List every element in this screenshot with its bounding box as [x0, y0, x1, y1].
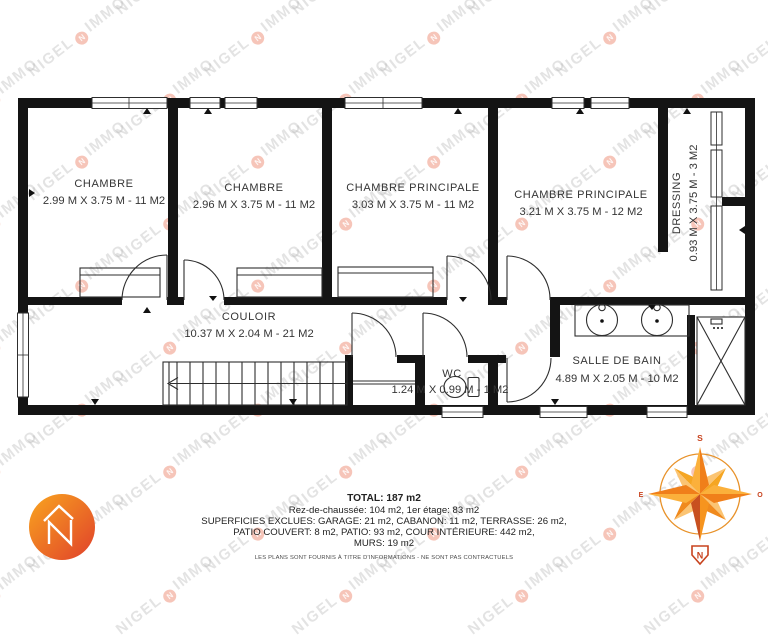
room-dims-salle-de-bain: 4.89 M X 2.05 M - 10 M2 — [555, 373, 678, 385]
surface-summary: TOTAL: 187 m2 Rez-de-chaussée: 104 m2, 1… — [0, 493, 768, 561]
room-dims-chambre-1: 2.99 M X 3.75 M - 11 M2 — [43, 195, 165, 207]
watermark-logo-dot: N — [337, 587, 355, 605]
wardrobe-icon — [237, 268, 322, 297]
staircase — [163, 362, 347, 405]
wardrobe-icon — [80, 268, 160, 297]
room-dims-chambre-principale-2: 3.21 M X 3.75 M - 12 M2 — [519, 206, 642, 218]
room-label-chambre-principale-2: CHAMBRE PRINCIPALE — [514, 189, 647, 201]
wardrobes — [80, 267, 433, 297]
walls — [18, 98, 755, 415]
floor-plan-page: { "watermark": { "word1": "NIGEL", "word… — [0, 0, 768, 576]
watermark-logo-dot: N — [513, 587, 531, 605]
window-icon — [711, 112, 722, 290]
room-label-wc: WC — [442, 368, 462, 380]
watermark-logo-dot: N — [0, 587, 3, 605]
excluded-areas-2: PATIO COUVERT: 8 m2, PATIO: 93 m2, COUR … — [0, 527, 768, 538]
door-icon — [507, 358, 551, 402]
double-sink-vanity — [575, 304, 689, 336]
room-label-dressing: DRESSING — [671, 172, 683, 234]
door-icon — [447, 256, 491, 300]
excluded-areas-1: SUPERFICIES EXCLUES: GARAGE: 21 m2, CABA… — [0, 516, 768, 527]
excluded-areas-3: MURS: 19 m2 — [0, 538, 768, 549]
window-icon — [540, 407, 587, 418]
room-label-couloir: COULOIR — [222, 311, 276, 323]
window-icon — [18, 313, 29, 397]
door-icon — [352, 313, 396, 357]
floor-areas: Rez-de-chaussée: 104 m2, 1er étage: 83 m… — [0, 505, 768, 516]
floor-plan: CHAMBRE 2.99 M X 3.75 M - 11 M2 CHAMBRE … — [0, 0, 768, 576]
windows — [18, 98, 723, 418]
disclaimer: LES PLANS SONT FOURNIS À TITRE D'INFORMA… — [0, 555, 768, 561]
window-icon — [442, 407, 483, 418]
room-dims-wc: 1.24 M X 0.99 M - 1 M2 — [392, 384, 509, 396]
room-dims-dressing: 0.93 M X 3.75 M - 3 M2 — [688, 145, 700, 262]
door-icon — [507, 256, 550, 300]
window-icon — [92, 98, 167, 109]
window-icon — [552, 98, 584, 109]
room-dims-couloir: 10.37 M X 2.04 M - 21 M2 — [184, 328, 313, 340]
window-icon — [647, 407, 687, 418]
window-icon — [345, 98, 422, 109]
window-icon — [225, 98, 257, 109]
door-icon — [423, 313, 467, 357]
room-label-chambre-2: CHAMBRE — [224, 182, 283, 194]
wardrobe-icon — [338, 267, 433, 297]
watermark-logo-dot: N — [161, 587, 179, 605]
room-label-chambre-1: CHAMBRE — [74, 178, 133, 190]
watermark-logo-dot: N — [689, 587, 707, 605]
window-icon — [591, 98, 629, 109]
room-dims-chambre-principale-1: 3.03 M X 3.75 M - 11 M2 — [352, 199, 474, 211]
room-dims-chambre-2: 2.96 M X 3.75 M - 11 M2 — [193, 199, 315, 211]
room-label-salle-de-bain: SALLE DE BAIN — [572, 355, 661, 367]
door-icon — [184, 260, 224, 300]
compass-label-south: S — [697, 433, 703, 443]
room-label-chambre-principale-1: CHAMBRE PRINCIPALE — [346, 182, 479, 194]
shower-icon — [697, 317, 745, 405]
window-icon — [190, 98, 220, 109]
total-area: TOTAL: 187 m2 — [0, 493, 768, 505]
